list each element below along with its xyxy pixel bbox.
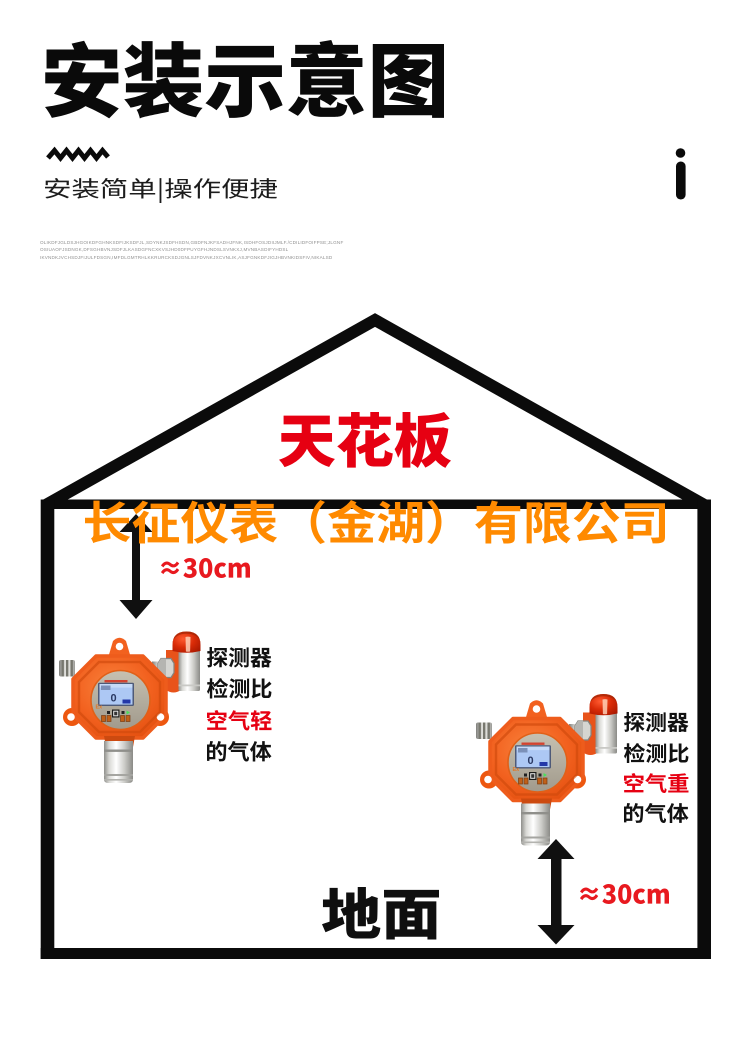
svg-text:Ex: Ex: [96, 705, 104, 711]
svg-text:0: 0: [110, 693, 116, 705]
